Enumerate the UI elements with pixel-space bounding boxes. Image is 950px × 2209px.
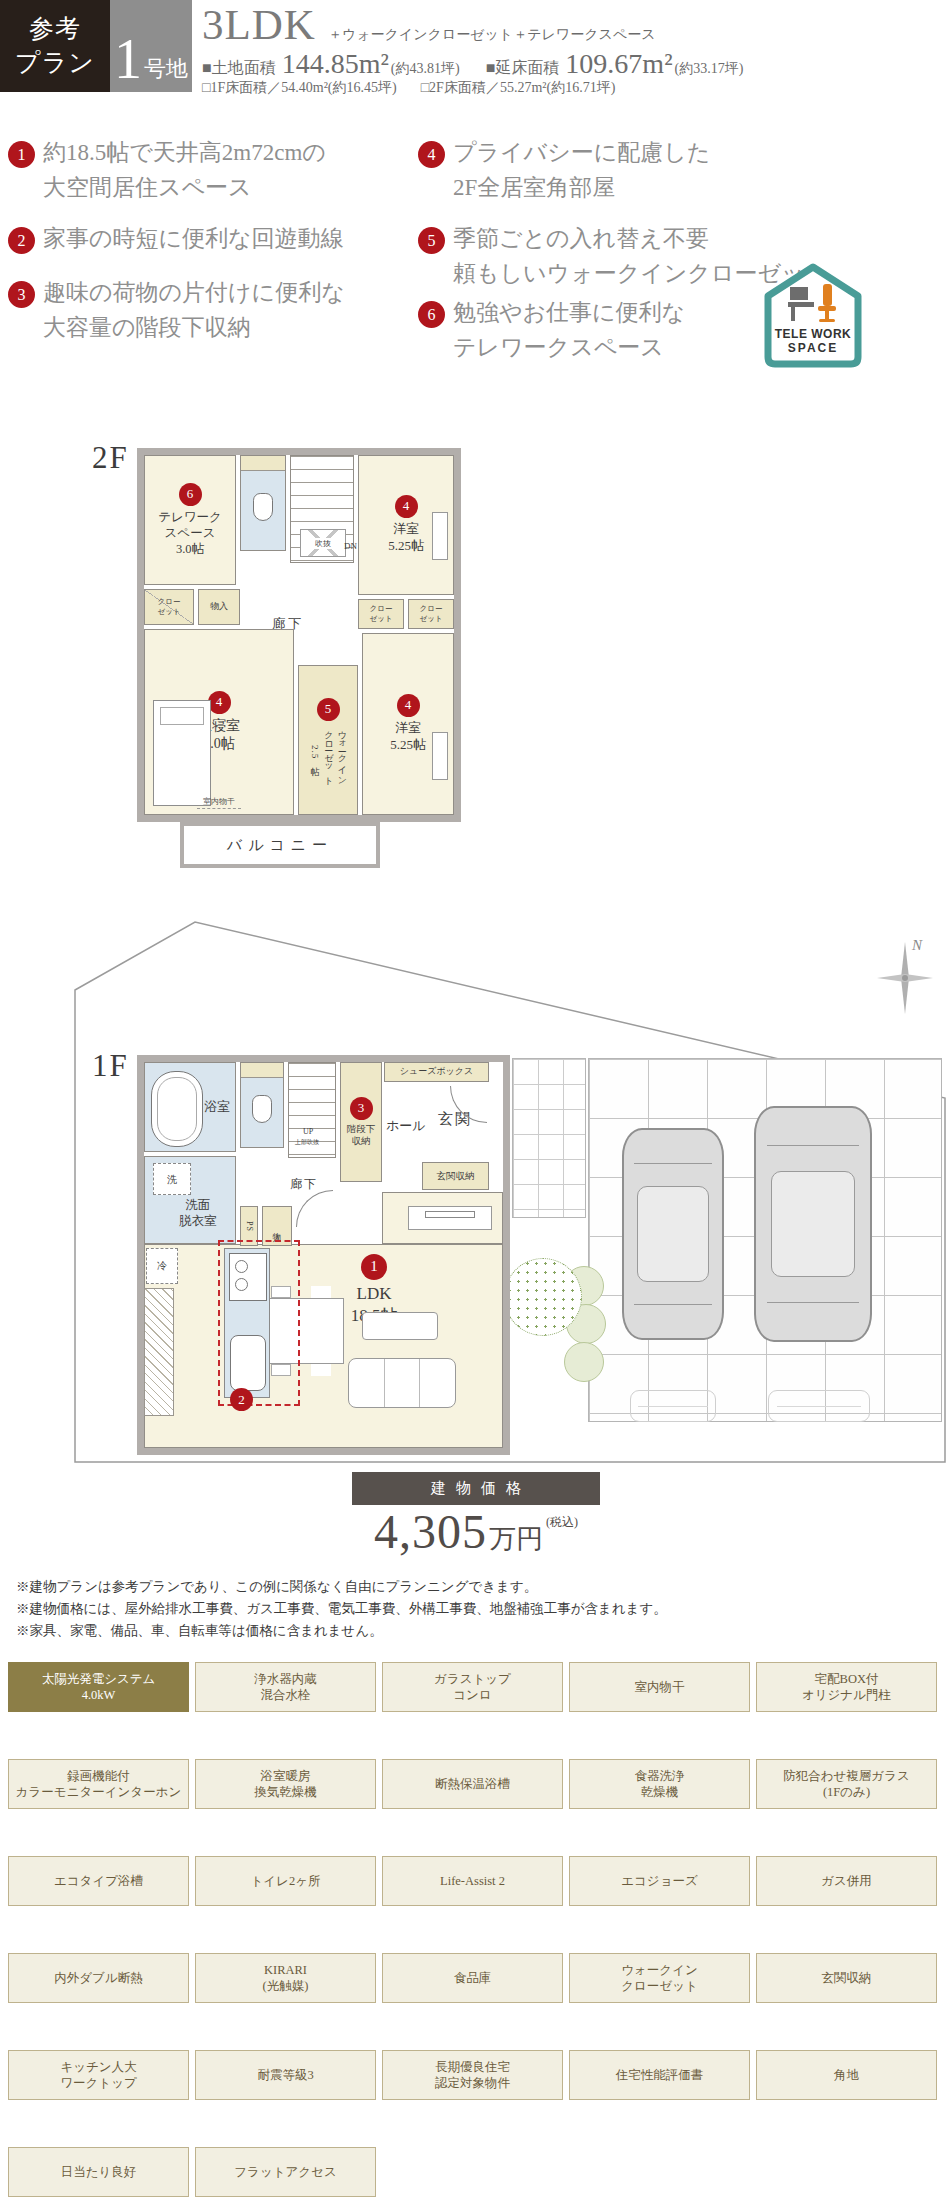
car-roof (771, 1171, 855, 1278)
bathtub-icon (151, 1071, 203, 1147)
floorplan-2f: 6 テレワーク スペース 3.0帖 吹抜 DN 4 洋室 5.25帖 クロー ゼ… (137, 448, 461, 822)
closet-right-1: クロー ゼット (358, 599, 404, 629)
tv-board-icon (408, 1206, 492, 1230)
feature-item-6: 6 勉強やお仕事に便利な テレワークスペース (418, 296, 685, 365)
sofa-icon (348, 1358, 456, 1408)
feature-badge-4: 4 (418, 141, 445, 168)
feature-text-4: プライバシーに配慮した 2F全居室角部屋 (453, 136, 710, 205)
room-bedroom-bottom: 4 洋室 5.25帖 (362, 633, 454, 815)
pantry-shelf (144, 1288, 174, 1416)
land-area-value: 144.85m² (282, 48, 389, 80)
feature-badge-3: 3 (8, 281, 35, 308)
bush-icon (564, 1342, 604, 1382)
room-badge: 6 (179, 483, 202, 506)
feature-item-2: 2 家事の時短に便利な回遊動線 (8, 222, 344, 257)
amenity-cell: ガス併用 (756, 1856, 937, 1906)
car-outline-icon (768, 1390, 870, 1422)
svg-text:SPACE: SPACE (788, 341, 838, 355)
amenity-cell: 防犯合わせ複層ガラス (1Fのみ) (756, 1759, 937, 1809)
car-icon-1 (622, 1128, 724, 1340)
feature-text-1: 約18.5帖で天井高2m72cmの 大空間居住スペース (43, 136, 326, 205)
amenity-cell: ウォークイン クローゼット (569, 1953, 750, 2003)
amenity-cell: 宅配BOX付 オリジナル門柱 (756, 1662, 937, 1712)
amenity-cell: 耐震等級3 (195, 2050, 376, 2100)
lot-number: 1 (114, 36, 142, 84)
floor1-area: □1F床面積／54.40m²(約16.45坪) (202, 79, 397, 97)
feature-text-6: 勉強やお仕事に便利な テレワークスペース (453, 296, 685, 365)
floor2-label: 2F (92, 440, 129, 476)
layout-type: 3LDK (202, 0, 316, 49)
area-summary-row: ■土地面積 144.85m² (約43.81坪) ■延床面積 109.67m² … (202, 48, 743, 80)
stairs-down-label: DN (344, 541, 357, 551)
floor1-label: 1F (92, 1048, 129, 1084)
room-powder: 洗 洗面 脱衣室 (144, 1156, 236, 1244)
toilet-icon (252, 1095, 272, 1123)
price-tax-note: (税込) (546, 1514, 578, 1531)
feature-badge-6: 6 (418, 301, 445, 328)
feature-item-3: 3 趣味の荷物の片付けに便利な 大容量の階段下収納 (8, 276, 345, 345)
disclaimer-line: ※家具、家電、備品、車、自転車等は価格に含まれません。 (16, 1620, 667, 1642)
desk-icon (432, 732, 448, 780)
fridge-icon: 冷 (146, 1248, 178, 1284)
plan-type-label: 参考 プラン (15, 12, 95, 80)
stairs-1f: UP 上部吹抜 (288, 1062, 336, 1158)
room-badge: 3 (350, 1097, 373, 1120)
amenity-cell: 浄水器内蔵 混合水栓 (195, 1662, 376, 1712)
door-arc (296, 1190, 333, 1227)
tree-icon (504, 1258, 582, 1336)
corridor-label-1f: 廊下 (290, 1176, 318, 1193)
amenity-cell: ガラストップ コンロ (382, 1662, 563, 1712)
circulation-badge: 2 (230, 1388, 253, 1411)
amenity-cell: エコジョーズ (569, 1856, 750, 1906)
disclaimer-section: ※建物プランは参考プランであり、この例に関係なく自由にプランニングできます。 ※… (16, 1576, 667, 1642)
room-master-bedroom: 4 主寝室 7.0帖 室内物干 (144, 629, 294, 815)
room-badge: 5 (317, 698, 340, 721)
layout-suffix: ＋ウォークインクローゼット＋テレワークスペース (328, 26, 656, 44)
svg-text:N: N (911, 937, 923, 953)
amenity-cell: 室内物干 (569, 1662, 750, 1712)
room-toilet-2f (240, 455, 286, 551)
floor2-area: □2F床面積／55.27m²(約16.71坪) (421, 79, 616, 97)
toilet-counter (241, 1063, 283, 1078)
hall-label: ホール (386, 1117, 426, 1135)
room-telework-space: 6 テレワーク スペース 3.0帖 (144, 455, 236, 585)
shoe-box: シューズボックス (384, 1062, 489, 1082)
storage-2f: 物入 (198, 589, 240, 625)
toilet-counter (241, 456, 285, 471)
void-area: 吹抜 (300, 529, 346, 557)
total-area-value: 109.67m² (565, 48, 672, 80)
amenity-cell: 長期優良住宅 認定対象物件 (382, 2050, 563, 2100)
total-area-tsubo: (約33.17坪) (675, 60, 744, 78)
floorplan-1f: 1 LDK 18.5帖 浴室 UP 上部吹抜 3 階段下 収納 ホール シューズ… (137, 1055, 510, 1455)
car-outline-icon (630, 1390, 716, 1422)
bed-icon (153, 700, 211, 806)
room-toilet-1f (240, 1062, 284, 1148)
closet-left: クロー ゼット (144, 589, 194, 625)
price-amount-row: 4,305 万円 (税込) (302, 1504, 650, 1559)
feature-item-1: 1 約18.5帖で天井高2m72cmの 大空間居住スペース (8, 136, 326, 205)
amenity-cell: 日当たり良好 (8, 2147, 189, 2197)
price-bar: 建物価格 (352, 1472, 600, 1505)
plan-type-box: 参考 プラン (0, 0, 110, 92)
telework-space-logo-icon: TELE WORK SPACE (763, 262, 863, 370)
room-badge: 4 (397, 694, 420, 717)
coffee-table-icon (362, 1312, 438, 1340)
room-badge: 1 (361, 1254, 387, 1280)
disclaimer-line: ※建物プランは参考プランであり、この例に関係なく自由にプランニングできます。 (16, 1576, 667, 1598)
room-under-stairs-storage: 3 階段下 収納 (340, 1062, 382, 1182)
amenity-cell: 太陽光発電システム 4.0kW (8, 1662, 189, 1712)
amenity-cell: エコタイプ浴槽 (8, 1856, 189, 1906)
compass-icon: N (872, 934, 938, 1018)
lot-suffix: 号地 (144, 54, 188, 84)
amenity-cell: 住宅性能評価書 (569, 2050, 750, 2100)
amenity-cell: KIRARI (光触媒) (195, 1953, 376, 2003)
layout-title: 3LDK ＋ウォークインクローゼット＋テレワークスペース (202, 0, 655, 49)
amenity-cell: 断熱保温浴槽 (382, 1759, 563, 1809)
car-roof (637, 1186, 710, 1282)
room-walk-in-closet: 5 ウォークイン クローゼット 2.5帖 (298, 665, 358, 815)
feature-text-3: 趣味の荷物の片付けに便利な 大容量の階段下収納 (43, 276, 345, 345)
feature-badge-5: 5 (418, 227, 445, 254)
amenity-cell: フラットアクセス (195, 2147, 376, 2197)
feature-badge-2: 2 (8, 227, 35, 254)
room-bath: 浴室 (144, 1062, 236, 1152)
entrance-storage: 玄関収納 (422, 1162, 489, 1190)
balcony: バルコニー (180, 822, 380, 868)
amenity-cell: 玄関収納 (756, 1953, 937, 2003)
price-unit: 万円 (489, 1521, 543, 1557)
svg-text:TELE WORK: TELE WORK (775, 327, 852, 341)
amenity-cell: トイレ2ヶ所 (195, 1856, 376, 1906)
amenity-cell: 録画機能付 カラーモニターインターホン (8, 1759, 189, 1809)
amenity-cell: Life-Assist 2 (382, 1856, 563, 1906)
washer-icon: 洗 (153, 1163, 191, 1195)
land-area-tsubo: (約43.81坪) (391, 60, 460, 78)
amenity-cell: 角地 (756, 2050, 937, 2100)
flyer-page: 参考 プラン 1 号地 3LDK ＋ウォークインクローゼット＋テレワークスペース… (0, 0, 950, 2209)
circulation-route (218, 1240, 300, 1406)
entrance-approach-tiles (512, 1058, 586, 1218)
toilet-icon (253, 493, 273, 521)
amenity-cell: 食器洗浄 乾燥機 (569, 1759, 750, 1809)
indoor-drying-label: 室内物干 (197, 797, 241, 809)
amenity-cell: 食品庫 (382, 1953, 563, 2003)
amenity-cell: キッチン人大 ワークトップ (8, 2050, 189, 2100)
feature-item-4: 4 プライバシーに配慮した 2F全居室角部屋 (418, 136, 710, 205)
amenity-cell: 浴室暖房 換気乾燥機 (195, 1759, 376, 1809)
feature-text-2: 家事の時短に便利な回遊動線 (43, 222, 344, 257)
closet-right-2: クロー ゼット (408, 599, 454, 629)
price-amount: 4,305 (374, 1504, 487, 1559)
floor-area-row: □1F床面積／54.40m²(約16.45坪) □2F床面積／55.27m²(約… (202, 79, 615, 97)
feature-badge-1: 1 (8, 141, 35, 168)
disclaimer-line: ※建物価格には、屋外給排水工事費、ガス工事費、電気工事費、外構工事費、地盤補強工… (16, 1598, 667, 1620)
land-area-label: ■土地面積 (202, 58, 276, 79)
room-badge: 4 (395, 495, 418, 518)
amenity-cell: 内外ダブル断熱 (8, 1953, 189, 2003)
desk-icon (432, 512, 448, 560)
car-icon-2 (754, 1106, 872, 1342)
lot-number-box: 1 号地 (110, 0, 192, 92)
total-area-label: ■延床面積 (486, 58, 560, 79)
room-bedroom-top: 4 洋室 5.25帖 (358, 455, 454, 595)
